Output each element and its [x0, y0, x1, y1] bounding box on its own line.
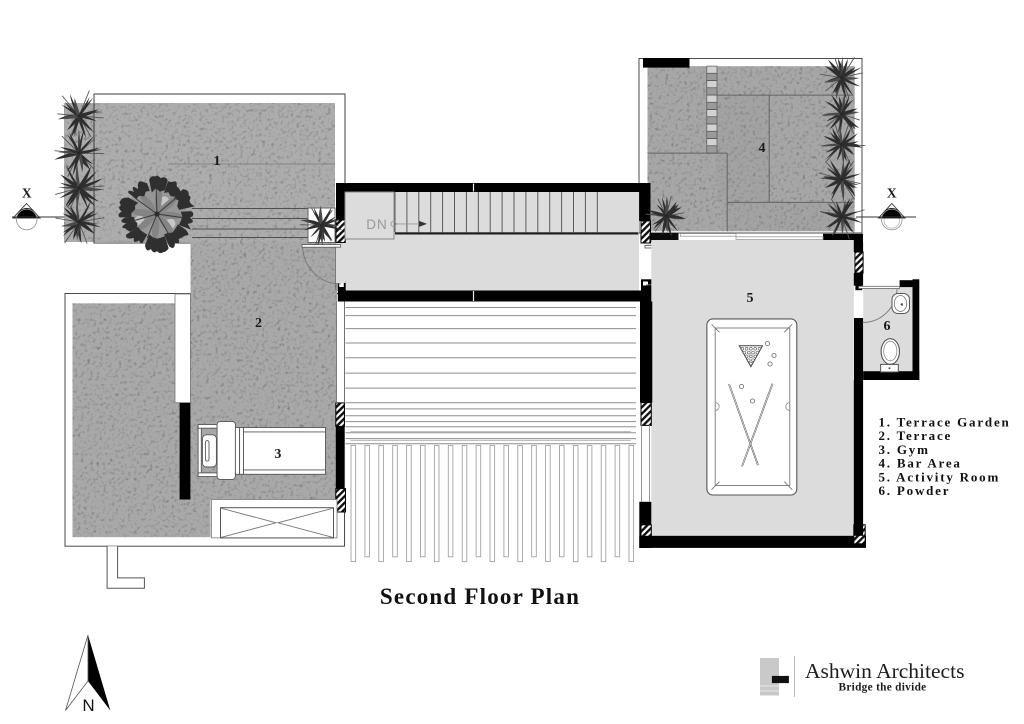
- svg-text:Ashwin Architects: Ashwin Architects: [805, 659, 964, 683]
- svg-text:Bridge the divide: Bridge the divide: [839, 682, 927, 694]
- svg-text:6. Powder: 6. Powder: [879, 483, 951, 498]
- svg-text:X: X: [887, 186, 897, 201]
- svg-text:4: 4: [759, 141, 766, 156]
- svg-text:1: 1: [214, 154, 221, 169]
- svg-text:DN: DN: [366, 217, 388, 232]
- svg-text:Second Floor Plan: Second Floor Plan: [380, 584, 580, 609]
- svg-text:X: X: [22, 186, 32, 201]
- svg-text:2: 2: [255, 316, 262, 331]
- svg-text:5: 5: [747, 291, 754, 306]
- svg-text:3: 3: [274, 447, 281, 462]
- svg-text:6: 6: [884, 319, 891, 334]
- svg-text:N: N: [82, 696, 94, 715]
